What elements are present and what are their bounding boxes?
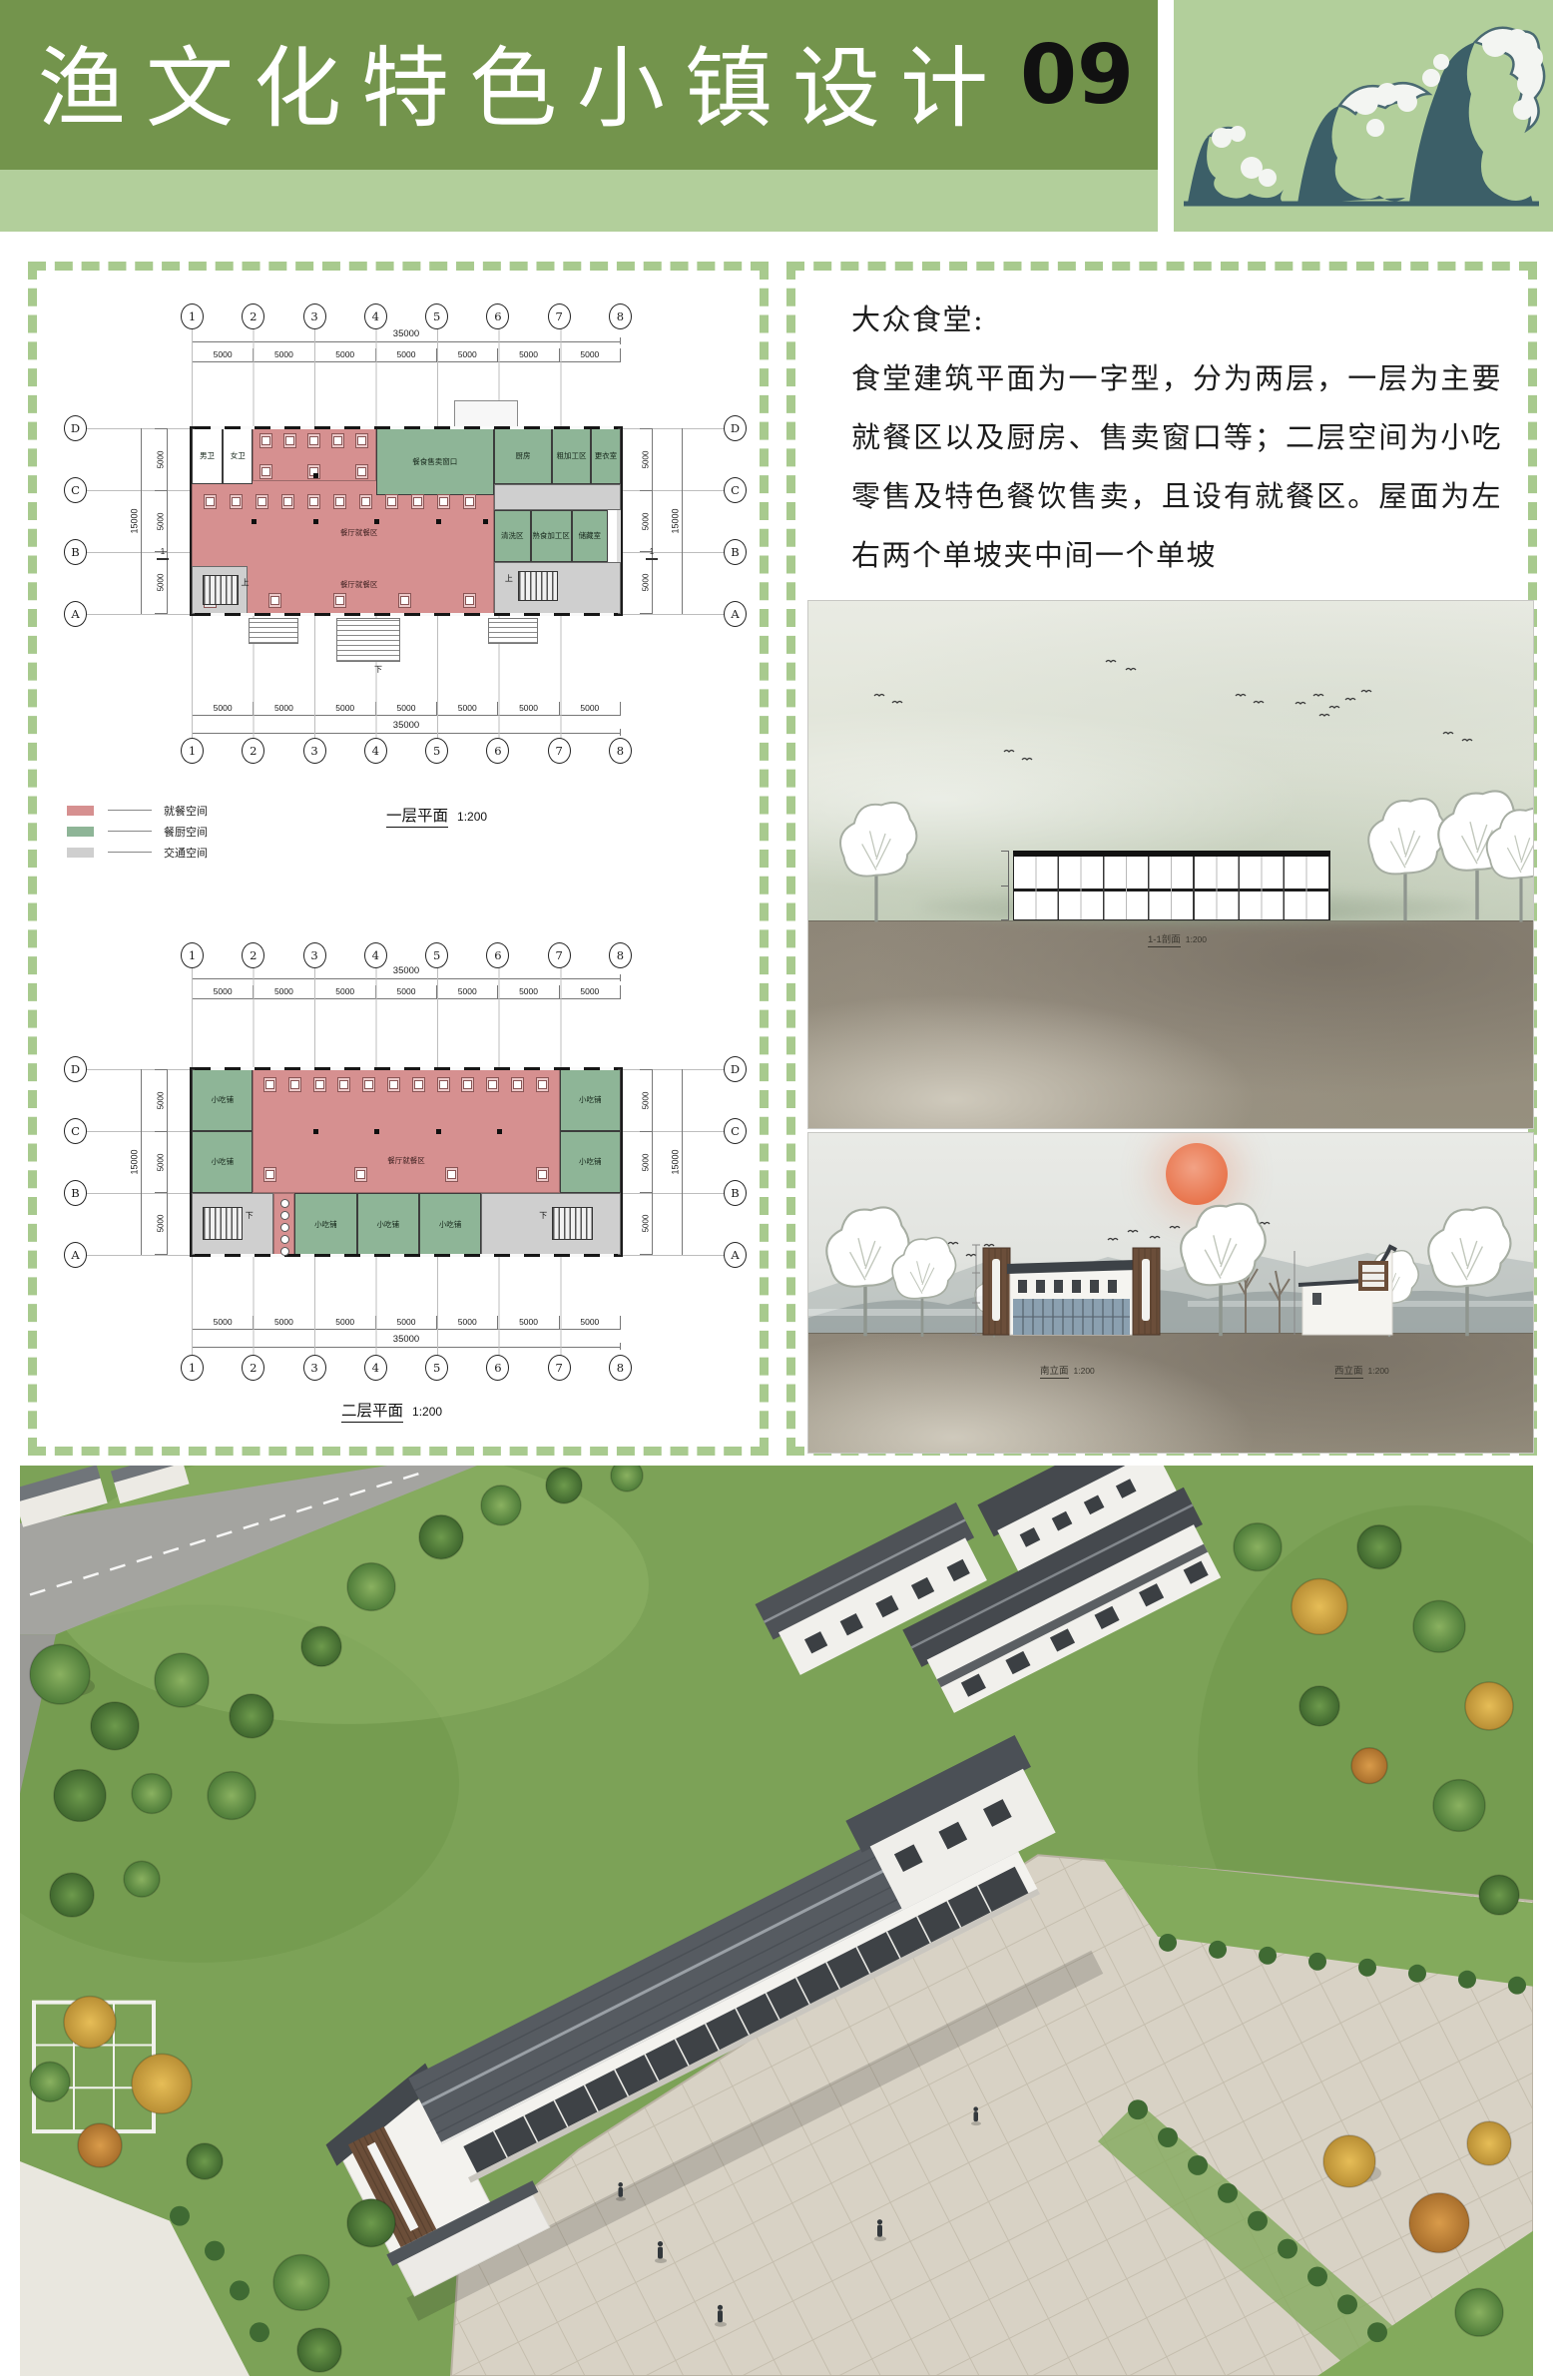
room-snack: 小吃铺 — [357, 1193, 419, 1255]
dim-total-height-right-f1: 15000 — [670, 428, 683, 614]
table-symbols — [260, 434, 368, 479]
dim-total-height-right-f2: 15000 — [670, 1069, 683, 1255]
header-bar: 渔文化特色小镇设计 09 — [0, 0, 1158, 170]
dim-value: 5000 — [642, 1153, 651, 1171]
plans-panel: 12345678 35000 5000500050005000500050005… — [28, 262, 769, 1456]
stair-right — [518, 571, 559, 601]
grid-bubbles-bottom-f2: 12345678 — [181, 1355, 632, 1381]
wave-icon — [1180, 18, 1547, 218]
grid-bubbles-left-f2: DCBA — [64, 1056, 86, 1268]
window-strip — [195, 426, 618, 429]
grid-bubbles-top-f1: 12345678 — [181, 303, 632, 329]
grid-bubble: 2 — [242, 942, 264, 968]
section-render: 1-1剖面1:200 — [807, 600, 1534, 1129]
window-strip — [195, 613, 618, 616]
grid-bubble: 2 — [242, 738, 264, 764]
dim-side-right-f2: 500050005000 — [640, 1069, 653, 1255]
room-changing: 更衣室 — [591, 428, 621, 484]
grid-bubble: 5 — [425, 942, 448, 968]
header-wave-block — [1174, 0, 1553, 232]
grid-bubble: A — [724, 601, 747, 627]
grid-bubble: 6 — [486, 738, 509, 764]
grid-bubble: C — [724, 1118, 747, 1144]
grid-bubble: 6 — [486, 942, 509, 968]
header-light-strip — [0, 170, 1158, 232]
entry-steps — [488, 618, 538, 644]
grid-bubble: D — [64, 1056, 87, 1082]
room-snack: 小吃铺 — [419, 1193, 481, 1255]
grid-bubble: C — [64, 477, 87, 503]
grid-bubble: 1 — [181, 942, 204, 968]
room-snack: 小吃铺 — [192, 1131, 253, 1193]
floor2-building: 小吃铺 小吃铺 小吃铺 小吃铺 小吃铺 小吃铺 小吃铺 下 下 餐厅就餐区 — [192, 1069, 621, 1255]
grid-bubble: 3 — [303, 942, 326, 968]
aerial-render — [20, 1466, 1533, 2376]
grid-bubble: 1 — [181, 1355, 204, 1381]
exterior-down-label: 下 — [374, 664, 382, 675]
room-snack: 小吃铺 — [560, 1069, 621, 1131]
stair-down-label: 下 — [246, 1210, 254, 1221]
window-strip — [195, 1067, 618, 1070]
grid-bubble: 6 — [486, 1355, 509, 1381]
floor1-title: 一层平面1:200 — [386, 804, 487, 826]
grid-bubble: D — [64, 415, 87, 441]
notes-body: 食堂建筑平面为一字型，分为两层，一层为主要就餐区以及厨房、售卖窗口等；二层空间为… — [851, 361, 1502, 572]
dim-value: 5000 — [157, 574, 166, 592]
grid-bubble: A — [724, 1242, 747, 1268]
dim-value: 5000 — [642, 1091, 651, 1109]
dim-value: 5000 — [157, 1091, 166, 1109]
south-elevation-caption: 南立面1:200 — [1040, 1363, 1095, 1377]
grid-bubble: 8 — [609, 942, 632, 968]
grid-bubble: A — [64, 1242, 87, 1268]
room-storage: 储藏室 — [572, 510, 609, 562]
section-caption: 1-1剖面1:200 — [1148, 931, 1207, 945]
side-elevation-caption: 西立面1:200 — [1334, 1363, 1389, 1377]
grid-bubble: B — [724, 1180, 747, 1206]
grid-bubble: 2 — [242, 303, 264, 329]
grid-bubble: 4 — [364, 303, 387, 329]
floor2-title: 二层平面1:200 — [341, 1399, 442, 1421]
poster-title: 渔文化特色小镇设计 — [38, 18, 1008, 145]
grid-bubble: 1 — [181, 738, 204, 764]
grid-bubble: 8 — [609, 738, 632, 764]
grid-bubble: D — [724, 1056, 747, 1082]
entry-steps — [336, 618, 400, 662]
grid-bubble: A — [64, 601, 87, 627]
grid-bubbles-top-f2: 12345678 — [181, 942, 632, 968]
room-snack: 小吃铺 — [560, 1131, 621, 1193]
section-overlay — [808, 601, 1534, 1129]
entry-canopy — [454, 400, 518, 428]
dim-value: 5000 — [642, 512, 651, 530]
circulation-br-f2 — [481, 1193, 621, 1255]
legend-swatch-kitchen — [67, 827, 94, 837]
grid-bubble: 8 — [609, 1355, 632, 1381]
gate-elevation — [972, 1245, 1160, 1335]
grid-bubble: C — [64, 1118, 87, 1144]
dim-value: 5000 — [642, 450, 651, 468]
room-kitchen: 厨房 — [494, 428, 552, 484]
dim-side-left-f1: 500050005000 — [155, 428, 168, 614]
grid-bubble: 5 — [425, 738, 448, 764]
dim-value: 5000 — [642, 574, 651, 592]
window-strip — [195, 1254, 618, 1257]
legend-swatch-circulation — [67, 848, 94, 858]
dim-value: 5000 — [157, 450, 166, 468]
grid-bubble: 4 — [364, 1355, 387, 1381]
floor1-building: 男卫 女卫 餐食售卖窗口 厨房 粗加工区 更衣室 清洗区 熟食加工区 储藏室 上… — [192, 428, 621, 614]
grid-bubble: 3 — [303, 1355, 326, 1381]
dim-side-right-f1: 500050005000 — [640, 428, 653, 614]
grid-bubble: 7 — [548, 942, 571, 968]
section-mark-right: 1 — [646, 548, 658, 560]
elevation-render: 南立面1:200 西立面1:200 — [807, 1132, 1534, 1454]
dim-total-height-left-f1: 15000 — [129, 428, 142, 614]
sheet-number: 09 — [1020, 28, 1134, 123]
grid-bubbles-right-f2: DCBA — [724, 1056, 746, 1268]
grid-bubble: 5 — [425, 303, 448, 329]
dim-value: 5000 — [157, 512, 166, 530]
grid-bubble: 4 — [364, 738, 387, 764]
room-snack: 小吃铺 — [294, 1193, 356, 1255]
section-mark-left: 1 — [157, 548, 169, 560]
text-and-renders-panel: 大众食堂: 食堂建筑平面为一字型，分为两层，一层为主要就餐区以及厨房、售卖窗口等… — [786, 262, 1537, 1456]
dim-value: 5000 — [642, 1215, 651, 1233]
legend-swatch-dining — [67, 806, 94, 816]
grid-bubbles-bottom-f1: 12345678 — [181, 738, 632, 764]
grid-bubble: B — [64, 539, 87, 565]
room-washing: 清洗区 — [494, 510, 531, 562]
grid-bubble: C — [724, 477, 747, 503]
stair-up-label: 上 — [241, 577, 249, 588]
dim-total-height-left-f2: 15000 — [129, 1069, 142, 1255]
dim-side-left-f2: 500050005000 — [155, 1069, 168, 1255]
stair-left-f2 — [203, 1207, 244, 1241]
dim-value: 5000 — [157, 1153, 166, 1171]
grid-bubble: 8 — [609, 303, 632, 329]
legend: 就餐空间 餐厨空间 交通空间 — [67, 800, 208, 863]
corridor — [494, 484, 621, 510]
stair-left — [203, 575, 239, 605]
grid-bubble: B — [724, 539, 747, 565]
stair-down-label: 下 — [539, 1210, 547, 1221]
room-snack: 小吃铺 — [192, 1069, 253, 1131]
elevation-overlay — [808, 1133, 1534, 1454]
legend-row: 交通空间 — [67, 842, 208, 863]
grid-bubble: B — [64, 1180, 87, 1206]
description-text: 大众食堂: 食堂建筑平面为一字型，分为两层，一层为主要就餐区以及厨房、售卖窗口等… — [851, 291, 1502, 585]
dining-label: 餐厅就餐区 — [299, 527, 419, 538]
dim-value: 5000 — [157, 1215, 166, 1233]
dining-label: 餐厅就餐区 — [299, 579, 419, 590]
stair-up-label: 上 — [505, 573, 513, 584]
grid-bubble: 1 — [181, 303, 204, 329]
grid-bubble: 3 — [303, 303, 326, 329]
room-rough-prep: 粗加工区 — [552, 428, 591, 484]
legend-row: 就餐空间 — [67, 800, 208, 821]
grid-bubble: D — [724, 415, 747, 441]
notes-heading: 大众食堂: — [851, 291, 1502, 349]
grid-bubble: 4 — [364, 942, 387, 968]
room-serving-window: 餐食售卖窗口 — [376, 428, 494, 495]
queue-circles — [280, 1199, 289, 1256]
room-cooked-prep: 熟食加工区 — [531, 510, 572, 562]
legend-row: 餐厨空间 — [67, 821, 208, 842]
grid-bubble: 7 — [548, 738, 571, 764]
grid-bubble: 3 — [303, 738, 326, 764]
entry-steps — [249, 618, 298, 644]
grid-bubble: 7 — [548, 1355, 571, 1381]
grid-bubble: 2 — [242, 1355, 264, 1381]
table-symbols — [205, 495, 475, 607]
room-female-wc: 女卫 — [223, 428, 254, 484]
poster-page: 渔文化特色小镇设计 09 12345678 350 — [0, 0, 1553, 2380]
grid-bubble: 6 — [486, 303, 509, 329]
grid-bubble: 5 — [425, 1355, 448, 1381]
grid-bubbles-left-f1: DCBA — [64, 415, 86, 627]
aerial-render-frame — [20, 1466, 1533, 2376]
grid-bubbles-right-f1: DCBA — [724, 415, 746, 627]
grid-bubble: 7 — [548, 303, 571, 329]
dining-label-f2: 餐厅就餐区 — [346, 1155, 466, 1166]
room-male-wc: 男卫 — [192, 428, 223, 484]
stair-right-f2 — [552, 1207, 593, 1241]
